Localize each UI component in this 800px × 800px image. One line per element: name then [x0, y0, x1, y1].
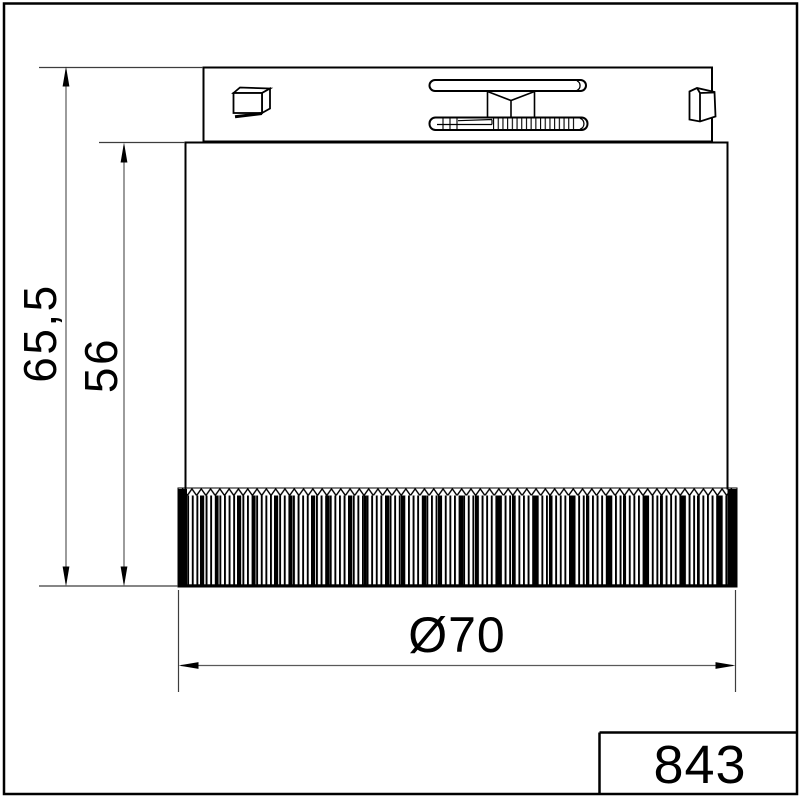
arrowhead-up [121, 143, 128, 163]
arrowhead-down [121, 567, 128, 587]
dimension-overall-height: 65,5 [14, 67, 203, 587]
knurl-teeth [178, 488, 737, 496]
knurled-ring [178, 488, 737, 587]
dimension-diameter: Ø70 [179, 590, 736, 692]
arrowhead-right [716, 662, 736, 669]
drawing-canvas: 843 [0, 0, 800, 800]
body-outline [186, 143, 728, 490]
bayonet-top-bar [430, 80, 587, 91]
cap-right-clip [690, 88, 716, 122]
cap-left-clip [234, 88, 271, 117]
dimension-label-body-height: 56 [75, 337, 127, 393]
title-block: 843 [600, 733, 798, 796]
arrowhead-down [63, 567, 70, 587]
product-view [178, 68, 737, 588]
part-number: 843 [653, 735, 746, 795]
arrowhead-up [63, 67, 70, 87]
arrowhead-left [179, 662, 199, 669]
dimension-label-overall-height: 65,5 [14, 283, 66, 383]
technical-drawing: 843 [0, 0, 800, 800]
dimension-label-diameter: Ø70 [408, 607, 506, 663]
